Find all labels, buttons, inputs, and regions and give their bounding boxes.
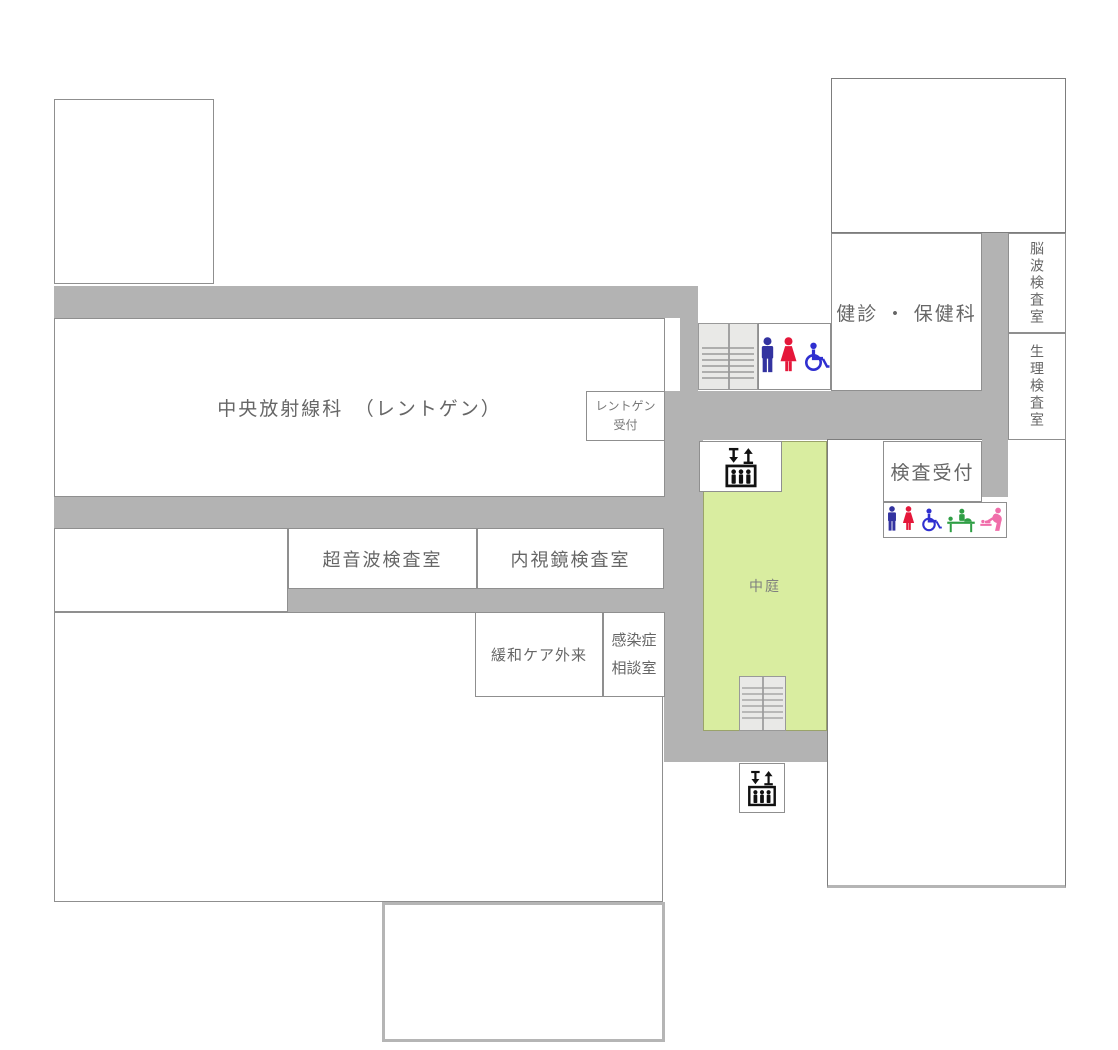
courtyard-label: 中庭: [749, 576, 781, 596]
room-label: 相談室: [611, 655, 656, 683]
room-top-right: [831, 78, 1066, 233]
elevator-icon: [699, 441, 782, 492]
male-toilet-icon: [886, 506, 898, 534]
toilet-box: [758, 323, 831, 390]
corridor-top-horizontal: [54, 286, 698, 318]
room-palliative-care: 緩和ケア外来: [475, 612, 603, 697]
room-eeg-exam: 脳波検査室: [1008, 233, 1066, 333]
room-label: 超音波検査室: [323, 546, 443, 572]
room-ultrasound-exam: 超音波検査室: [288, 528, 477, 589]
room-physiology-exam: 生理検査室: [1008, 333, 1066, 440]
room-xray-reception: レントゲン 受付: [586, 391, 665, 441]
corridor-lower-horizontal: [288, 589, 664, 612]
corridor-right-vertical: [982, 233, 1008, 497]
elevator-icon: [739, 763, 785, 813]
hospital-floor-plan: 中央放射線科 （レントゲン） レントゲン 受付 健診 ・ 保健科 脳波検査室 生…: [0, 0, 1118, 1050]
corridor-courtyard-left: [664, 440, 703, 762]
room-endoscopy-exam: 内視鏡検査室: [477, 528, 664, 589]
corridor-middle-horizontal: [664, 391, 1008, 440]
room-label: 緩和ケア外来: [491, 644, 587, 665]
stairs-icon: [739, 676, 786, 731]
room-label: 受付: [613, 416, 637, 435]
wheelchair-accessible-icon: [801, 341, 831, 373]
female-toilet-icon: [901, 506, 916, 534]
room-label: 感染症: [611, 627, 656, 655]
corridor-courtyard-bottom: [664, 731, 827, 762]
room-label: レントゲン: [595, 397, 655, 416]
room-exam-reception: 検査受付: [883, 441, 982, 502]
room-label: 中央放射線科 （レントゲン）: [217, 394, 502, 421]
wheelchair-accessible-icon: [919, 507, 943, 533]
room-label: 健診 ・ 保健科: [836, 299, 977, 326]
room-label: 内視鏡検査室: [511, 546, 631, 572]
stairs-icon: [698, 323, 758, 390]
room-left-middle: [54, 528, 288, 612]
male-toilet-icon: [759, 337, 776, 377]
room-label: 生理検査室: [1027, 344, 1047, 429]
room-top-left: [54, 99, 214, 284]
room-label: 検査受付: [890, 458, 974, 485]
toilet-baby-care-box: [883, 502, 1007, 538]
corridor-top-connector: [680, 286, 698, 391]
room-bottom-middle: [382, 902, 665, 1042]
room-label: 脳波検査室: [1027, 241, 1047, 326]
female-toilet-icon: [778, 337, 799, 377]
baby-care-icon: [979, 507, 1005, 533]
corridor-second-horizontal: [54, 497, 664, 528]
room-checkup-health-dept: 健診 ・ 保健科: [831, 233, 982, 391]
diaper-changing-station-icon: [946, 507, 976, 533]
room-infection-consult: 感染症 相談室: [603, 612, 665, 697]
room-central-radiology: 中央放射線科 （レントゲン）: [54, 318, 665, 497]
